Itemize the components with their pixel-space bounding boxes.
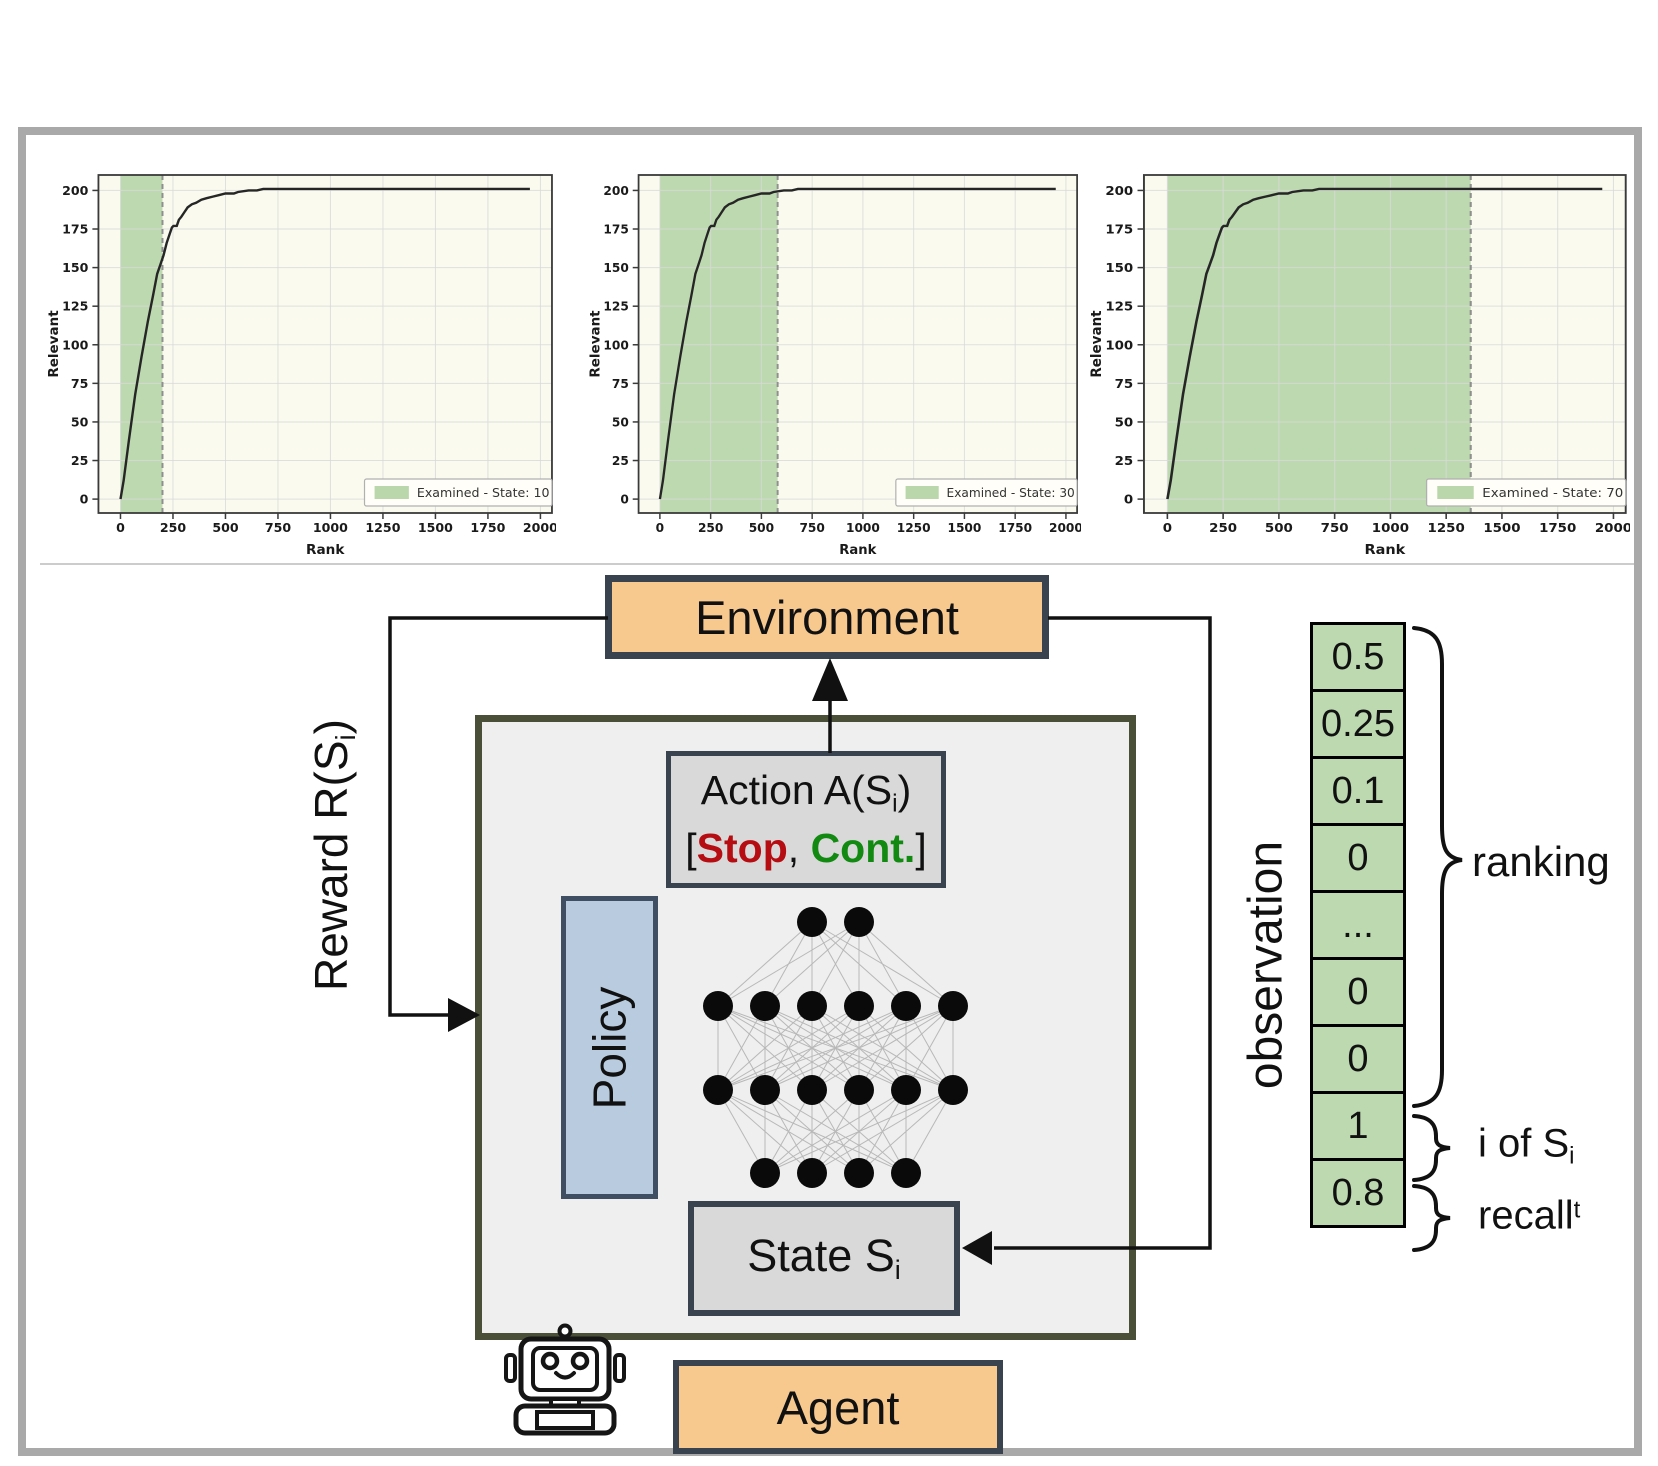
- stop-option: Stop: [697, 825, 788, 871]
- svg-text:50: 50: [1115, 416, 1134, 430]
- environment-label: Environment: [695, 590, 959, 645]
- svg-text:Relevant: Relevant: [46, 310, 62, 378]
- state-label: State Si: [747, 1230, 901, 1286]
- observation-cell: 0.5: [1310, 622, 1406, 692]
- svg-text:200: 200: [62, 183, 89, 198]
- svg-text:125: 125: [1105, 300, 1133, 314]
- reward-label: Reward R(Si): [304, 719, 362, 991]
- agent-label: Agent: [777, 1380, 900, 1435]
- svg-text:75: 75: [612, 377, 629, 391]
- svg-text:750: 750: [265, 520, 292, 535]
- svg-text:50: 50: [612, 415, 629, 429]
- svg-text:1250: 1250: [897, 521, 931, 535]
- svg-text:150: 150: [603, 261, 628, 275]
- action-title: Action A(Si): [701, 763, 912, 821]
- continue-option: Cont.: [811, 825, 916, 871]
- observation-cell: 0: [1310, 957, 1406, 1027]
- svg-text:1250: 1250: [365, 520, 400, 535]
- ranking-label: ranking: [1472, 838, 1610, 886]
- observation-cell: 0.8: [1310, 1158, 1406, 1228]
- svg-text:125: 125: [603, 300, 628, 314]
- i-of-state-label: i of Si: [1478, 1121, 1575, 1170]
- charts-divider-line: [40, 563, 1634, 565]
- svg-text:100: 100: [62, 337, 89, 352]
- environment-box: Environment: [605, 575, 1049, 659]
- svg-text:2000: 2000: [1595, 521, 1630, 535]
- svg-text:1750: 1750: [470, 520, 505, 535]
- svg-text:Rank: Rank: [1364, 542, 1405, 557]
- svg-text:1500: 1500: [947, 521, 981, 535]
- svg-text:175: 175: [603, 222, 628, 236]
- svg-text:Relevant: Relevant: [589, 310, 604, 378]
- svg-text:250: 250: [698, 521, 723, 535]
- policy-label: Policy: [583, 986, 637, 1109]
- svg-text:0: 0: [656, 521, 664, 535]
- svg-text:750: 750: [1321, 521, 1349, 535]
- svg-text:25: 25: [71, 453, 89, 468]
- svg-text:1000: 1000: [313, 520, 348, 535]
- svg-text:Examined - State: 30: Examined - State: 30: [947, 486, 1075, 500]
- svg-text:25: 25: [612, 454, 629, 468]
- svg-text:0: 0: [620, 492, 628, 506]
- svg-text:500: 500: [749, 521, 774, 535]
- svg-text:125: 125: [62, 299, 88, 314]
- svg-text:50: 50: [71, 414, 89, 429]
- agent-label-box: Agent: [673, 1360, 1003, 1454]
- svg-text:250: 250: [1209, 521, 1237, 535]
- svg-text:Examined - State: 70: Examined - State: 70: [1482, 486, 1623, 500]
- svg-text:200: 200: [1105, 184, 1133, 198]
- svg-text:500: 500: [212, 520, 239, 535]
- svg-text:1500: 1500: [418, 520, 453, 535]
- svg-text:200: 200: [603, 184, 628, 198]
- observation-label: observation: [1239, 841, 1294, 1089]
- svg-text:Examined - State: 10: Examined - State: 10: [417, 485, 550, 500]
- svg-text:Rank: Rank: [839, 543, 877, 558]
- svg-text:0: 0: [1163, 521, 1172, 535]
- svg-text:175: 175: [1105, 223, 1133, 237]
- paper-figure: { "colors": { "stop": "#b50d12", "cont":…: [0, 0, 1658, 1466]
- svg-text:2000: 2000: [1049, 521, 1081, 535]
- recall-curve-chart-3: 0250500750100012501500175020000255075100…: [1084, 163, 1630, 561]
- policy-box: Policy: [561, 896, 658, 1199]
- action-options: [Stop, Cont.]: [685, 821, 926, 876]
- svg-text:750: 750: [799, 521, 824, 535]
- svg-text:100: 100: [603, 338, 628, 352]
- svg-text:Rank: Rank: [306, 542, 345, 558]
- recall-curve-chart-1: 0250500750100012501500175020000255075100…: [42, 163, 556, 561]
- svg-text:Relevant: Relevant: [1089, 310, 1106, 378]
- svg-text:1500: 1500: [1483, 521, 1520, 535]
- svg-text:0: 0: [1124, 493, 1133, 507]
- observation-cell: 1: [1310, 1091, 1406, 1161]
- svg-text:1000: 1000: [1372, 521, 1409, 535]
- observation-cell: 0: [1310, 1024, 1406, 1094]
- svg-text:175: 175: [62, 222, 88, 237]
- recall-curve-chart-2: 0250500750100012501500175020000255075100…: [584, 163, 1081, 561]
- observation-vector: 0.50.250.10...0010.8: [1310, 622, 1406, 1228]
- observation-cell: 0.1: [1310, 756, 1406, 826]
- svg-text:1750: 1750: [1539, 521, 1576, 535]
- svg-text:1250: 1250: [1428, 521, 1465, 535]
- svg-text:100: 100: [1105, 339, 1133, 353]
- observation-cell: 0.25: [1310, 689, 1406, 759]
- svg-text:1750: 1750: [998, 521, 1032, 535]
- state-box: State Si: [688, 1201, 960, 1316]
- svg-text:250: 250: [160, 520, 187, 535]
- svg-text:0: 0: [80, 492, 89, 507]
- svg-text:150: 150: [1105, 261, 1133, 275]
- observation-cell: 0: [1310, 823, 1406, 893]
- svg-text:75: 75: [71, 376, 89, 391]
- recall-label: recallt: [1478, 1194, 1580, 1239]
- svg-text:2000: 2000: [523, 520, 556, 535]
- svg-text:1000: 1000: [846, 521, 880, 535]
- svg-text:75: 75: [1115, 377, 1134, 391]
- svg-text:500: 500: [1265, 521, 1293, 535]
- observation-cell: ...: [1310, 890, 1406, 960]
- svg-text:150: 150: [62, 260, 89, 275]
- svg-text:25: 25: [1115, 454, 1134, 468]
- svg-text:0: 0: [116, 520, 125, 535]
- action-box: Action A(Si) [Stop, Cont.]: [666, 751, 946, 888]
